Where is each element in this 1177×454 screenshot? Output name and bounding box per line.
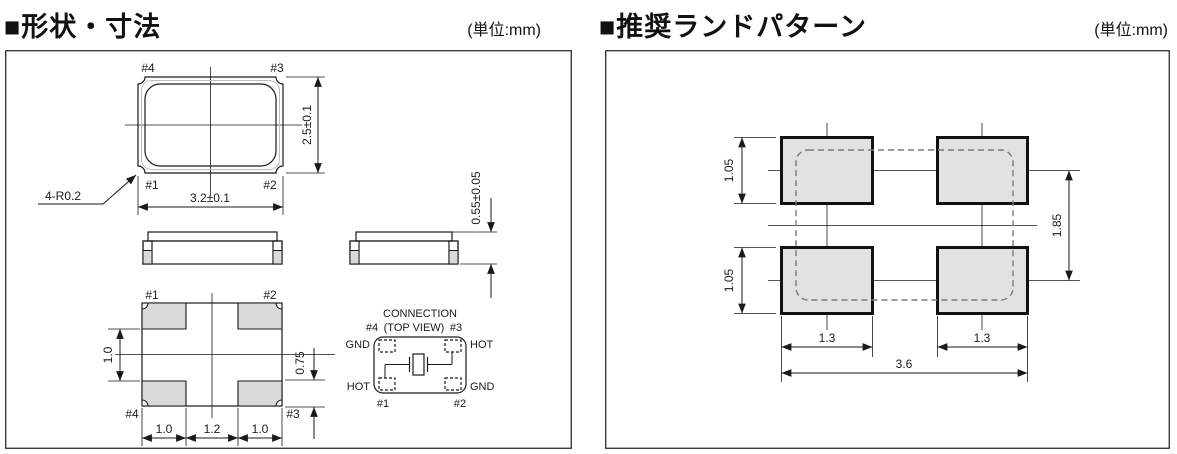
land-pattern: 1.05 1.05 1.85 1.3 1.3 — [722, 123, 1080, 382]
pad-width-dimensions: 1.3 1.3 — [782, 316, 1028, 382]
shape-dimensions-drawing: #4 #3 #1 #2 2.5±0.1 3.2±0.1 4-R0.2 — [5, 50, 572, 449]
connection-pad — [445, 340, 461, 352]
net-label: GND — [470, 381, 495, 393]
connection-diagram: CONNECTION (TOP VIEW) #4 #3 GND HOT HOT … — [346, 308, 495, 410]
dimension-text: 2.5±0.1 — [300, 105, 314, 145]
land-pattern-drawing: 1.05 1.05 1.85 1.3 1.3 — [605, 50, 1170, 449]
terminal-metal — [350, 251, 359, 265]
dimension-text: 1.05 — [722, 268, 736, 292]
dimension-text: 0.55±0.05 — [469, 171, 483, 225]
package-top-view: #4 #3 #1 #2 2.5±0.1 3.2±0.1 4-R0.2 — [38, 61, 325, 215]
pin-label: #3 — [270, 61, 284, 75]
dimension-text: 3.6 — [896, 357, 913, 371]
connection-pad — [379, 340, 395, 352]
dimension-text: 0.75 — [293, 351, 307, 375]
net-label: GND — [346, 339, 371, 351]
pad-height-dimension-top: 1.05 — [722, 138, 776, 204]
body-side — [350, 241, 458, 264]
bottom-pad — [238, 303, 282, 329]
net-label: HOT — [470, 339, 494, 351]
datasheet-page: ■形状・寸法 (単位:mm) ■推奨ランドパターン (単位:mm) #4 #3 … — [0, 0, 1177, 454]
pin-label: #1 — [145, 178, 159, 192]
connection-pad — [379, 378, 395, 390]
row-pitch-dimension: 1.85 — [1050, 171, 1069, 281]
bottom-pad — [238, 381, 282, 406]
connection-subheading: (TOP VIEW) — [384, 322, 445, 334]
pad-height-dimension: 0.75 — [285, 348, 325, 439]
pad-height-dimension-bottom: 1.05 — [722, 248, 776, 314]
left-panel-title: ■形状・寸法 — [4, 5, 161, 44]
pin-label: #3 — [286, 407, 300, 421]
dimension-text: 1.2 — [204, 422, 221, 436]
pin-label: #4 — [141, 61, 155, 75]
land-pad — [782, 138, 873, 204]
terminal-metal — [143, 251, 152, 265]
land-pad — [938, 248, 1028, 314]
thickness-dimension: 0.55±0.05 — [450, 171, 497, 298]
dimension-text: 1.05 — [722, 158, 736, 182]
overall-width-dimension: 3.6 — [782, 357, 1028, 373]
pad-gap-dimension: 1.0 — [101, 329, 140, 381]
dimension-text: 1.0 — [252, 422, 269, 436]
pin-label: #4 — [125, 407, 139, 421]
bottom-pad — [142, 303, 186, 329]
lid-side — [148, 232, 277, 241]
corner-radius-callout: 4-R0.2 — [38, 175, 136, 204]
crystal-symbol — [385, 352, 452, 378]
dimension-text: 1.85 — [1050, 213, 1064, 237]
land-pad — [782, 248, 873, 314]
pin-label: #4 — [366, 322, 378, 334]
package-side-view: 0.55±0.05 — [350, 171, 497, 298]
land-pad — [938, 138, 1028, 204]
dimension-text: 4-R0.2 — [45, 189, 81, 203]
right-panel-unit: (単位:mm) — [1030, 16, 1168, 40]
package-bottom-view: #1 #2 #4 #3 1.0 0.75 — [101, 288, 335, 446]
right-panel-title: ■推奨ランドパターン — [599, 5, 867, 44]
dimension-text: 3.2±0.1 — [190, 191, 230, 205]
left-panel-unit: (単位:mm) — [400, 16, 541, 40]
connection-pad — [445, 378, 461, 390]
pin-label: #2 — [263, 288, 277, 302]
net-label: HOT — [347, 381, 371, 393]
lid-side — [356, 232, 452, 241]
pin-label: #2 — [263, 178, 277, 192]
package-front-view — [143, 232, 282, 264]
right-panel-border — [606, 51, 1170, 449]
bottom-pad — [142, 381, 186, 406]
dimension-text: 1.3 — [819, 331, 836, 345]
pin-label: #3 — [450, 322, 462, 334]
connection-heading: CONNECTION — [383, 308, 457, 320]
pin-label: #1 — [145, 288, 159, 302]
body-side — [143, 241, 282, 264]
dimension-text: 1.3 — [974, 331, 991, 345]
pin-label: #2 — [454, 398, 466, 410]
dimension-text: 1.0 — [101, 346, 115, 363]
terminal-metal — [273, 251, 282, 265]
pin-label: #1 — [377, 398, 389, 410]
dimension-text: 1.0 — [156, 422, 173, 436]
terminal-metal — [449, 251, 458, 265]
